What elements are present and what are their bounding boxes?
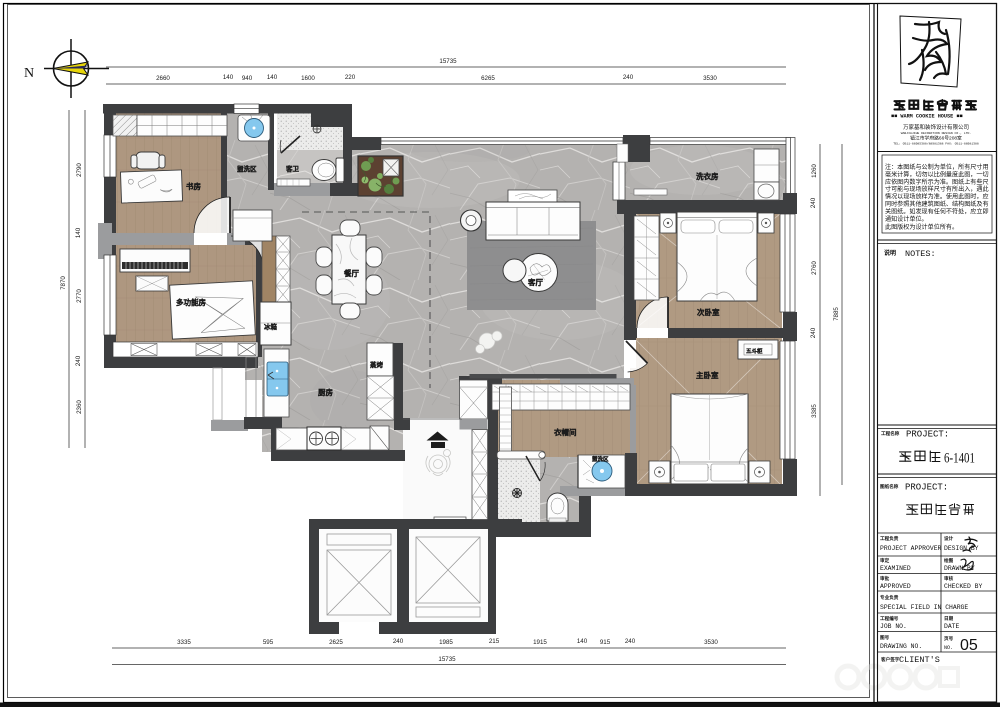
svg-text:专业负责: 专业负责	[880, 594, 899, 601]
svg-text:240: 240	[625, 638, 636, 645]
svg-text:2770: 2770	[76, 289, 83, 303]
svg-text:NOTES:: NOTES:	[905, 249, 936, 259]
svg-text:冰箱: 冰箱	[264, 322, 278, 331]
svg-text:万家基和装饰设计有限公司: 万家基和装饰设计有限公司	[903, 123, 969, 131]
svg-text:240: 240	[75, 355, 82, 366]
svg-text:215: 215	[489, 638, 500, 645]
svg-text:日期: 日期	[944, 615, 954, 622]
svg-text:盥洗区: 盥洗区	[592, 455, 609, 463]
svg-text:PROJECT APPROVER: PROJECT APPROVER	[880, 545, 942, 552]
svg-text:次卧室: 次卧室	[697, 307, 720, 317]
svg-text:PROJECT:: PROJECT:	[906, 430, 949, 440]
svg-text:客户签字: 客户签字	[880, 656, 900, 663]
svg-text:1600: 1600	[301, 75, 315, 82]
svg-text:940: 940	[242, 75, 253, 82]
svg-text:书房: 书房	[186, 181, 201, 191]
svg-text:140: 140	[267, 74, 278, 81]
svg-text:客厅: 客厅	[527, 277, 543, 287]
svg-text:寸可能与现场放样尺寸有所出入，遇此: 寸可能与现场放样尺寸有所出入，遇此	[885, 185, 989, 193]
svg-text:CLIENT'S: CLIENT'S	[899, 655, 940, 665]
svg-text:2760: 2760	[811, 261, 818, 275]
svg-text:6265: 6265	[481, 75, 495, 82]
svg-text:客卫: 客卫	[285, 164, 300, 173]
svg-text:1985: 1985	[439, 639, 453, 646]
svg-text:3335: 3335	[177, 639, 191, 646]
svg-text:PROJECT:: PROJECT:	[905, 483, 948, 493]
svg-text:工程编号: 工程编号	[880, 615, 899, 622]
svg-text:220: 220	[345, 74, 356, 81]
svg-text:140: 140	[223, 74, 234, 81]
svg-text:2625: 2625	[329, 639, 343, 646]
svg-text:说明: 说明	[884, 249, 896, 257]
svg-text:图纸名称: 图纸名称	[880, 483, 899, 490]
svg-text:洗衣房: 洗衣房	[696, 171, 719, 181]
svg-text:1260: 1260	[811, 164, 818, 178]
svg-text:2360: 2360	[76, 400, 83, 414]
svg-text:情况以现场放样为准。使用此图时，应: 情况以现场放样为准。使用此图时，应	[885, 193, 989, 201]
svg-text:NO.: NO.	[944, 645, 953, 651]
svg-text:通知设计单位。: 通知设计单位。	[885, 215, 928, 223]
svg-text:同时参照其他建筑图纸、结构图纸及有: 同时参照其他建筑图纸、结构图纸及有	[885, 200, 989, 208]
svg-text:DATE: DATE	[944, 623, 960, 630]
svg-text:140: 140	[577, 638, 588, 645]
svg-text:DRAWN BY: DRAWN BY	[944, 565, 975, 572]
svg-text:15735: 15735	[439, 58, 457, 65]
svg-text:主卧室: 主卧室	[696, 370, 719, 380]
svg-text:衣帽间: 衣帽间	[554, 427, 577, 437]
svg-text:五斗柜: 五斗柜	[746, 347, 763, 355]
svg-text:注：本图纸与公制为单位，所有尺寸用: 注：本图纸与公制为单位，所有尺寸用	[885, 163, 989, 171]
svg-text:2660: 2660	[156, 75, 170, 82]
svg-text:绘图: 绘图	[944, 557, 954, 564]
svg-text:设计: 设计	[944, 535, 954, 542]
svg-text:审核: 审核	[944, 575, 954, 582]
svg-text:915: 915	[600, 639, 611, 646]
svg-text:WANJIAJIHE DECORATION DESIGN C: WANJIAJIHE DECORATION DESIGN CO., LTD.	[901, 131, 972, 135]
svg-text:审定: 审定	[880, 557, 890, 564]
svg-text:多功能房: 多功能房	[176, 297, 206, 307]
svg-text:APPROVED: APPROVED	[880, 583, 911, 590]
svg-text:毫米计算，切勿以比例量度此图，一切: 毫米计算，切勿以比例量度此图，一切	[885, 170, 989, 178]
svg-text:7870: 7870	[60, 276, 67, 290]
svg-text:7885: 7885	[833, 307, 840, 321]
svg-text:3385: 3385	[811, 404, 818, 418]
svg-text:蒸烤: 蒸烤	[370, 360, 384, 369]
svg-text:595: 595	[263, 639, 274, 646]
svg-text:EXAMINED: EXAMINED	[880, 565, 911, 572]
svg-text:DRAWING NO.: DRAWING NO.	[880, 643, 922, 650]
svg-text:240: 240	[810, 327, 817, 338]
svg-text:■■ WARM COOKIE HOUSE ■■: ■■ WARM COOKIE HOUSE ■■	[891, 114, 963, 120]
svg-text:240: 240	[393, 638, 404, 645]
svg-text:JOB NO.: JOB NO.	[880, 623, 907, 630]
svg-text:240: 240	[810, 197, 817, 208]
svg-text:CHECKED BY: CHECKED BY	[944, 583, 983, 590]
svg-text:此图版权为设计单位所有。: 此图版权为设计单位所有。	[885, 223, 958, 231]
svg-text:1915: 1915	[533, 639, 547, 646]
svg-text:3530: 3530	[704, 639, 718, 646]
svg-text:工程名称: 工程名称	[881, 430, 900, 437]
svg-text:2790: 2790	[76, 163, 83, 177]
svg-text:15735: 15735	[438, 656, 456, 663]
svg-text:盥洗区: 盥洗区	[237, 164, 257, 173]
svg-text:审批: 审批	[880, 575, 890, 582]
svg-text:6-1401: 6-1401	[944, 451, 975, 467]
svg-text:05: 05	[960, 637, 978, 654]
svg-text:工程负责: 工程负责	[880, 535, 899, 542]
svg-text:3530: 3530	[703, 75, 717, 82]
svg-text:关图纸。如发现有任何不符处，应立即: 关图纸。如发现有任何不符处，应立即	[885, 207, 989, 215]
svg-text:餐厅: 餐厅	[343, 268, 359, 278]
svg-text:SPECIAL FIELD IN CHARGE: SPECIAL FIELD IN CHARGE	[880, 604, 968, 611]
svg-text:镇江市学府路66号208室: 镇江市学府路66号208室	[910, 135, 962, 142]
svg-text:240: 240	[623, 74, 634, 81]
svg-text:140: 140	[75, 227, 82, 238]
svg-text:图号: 图号	[880, 634, 890, 641]
svg-text:TEL: 0511-88985388/88981388 F: TEL: 0511-88985388/88981388 FAX: 0511-88…	[893, 142, 979, 146]
svg-text:页号: 页号	[944, 635, 954, 642]
svg-text:厨房: 厨房	[318, 387, 333, 397]
svg-text:应依图内数字所示为准。图纸上有些尺: 应依图内数字所示为准。图纸上有些尺	[885, 178, 989, 186]
svg-text:N: N	[24, 66, 34, 81]
